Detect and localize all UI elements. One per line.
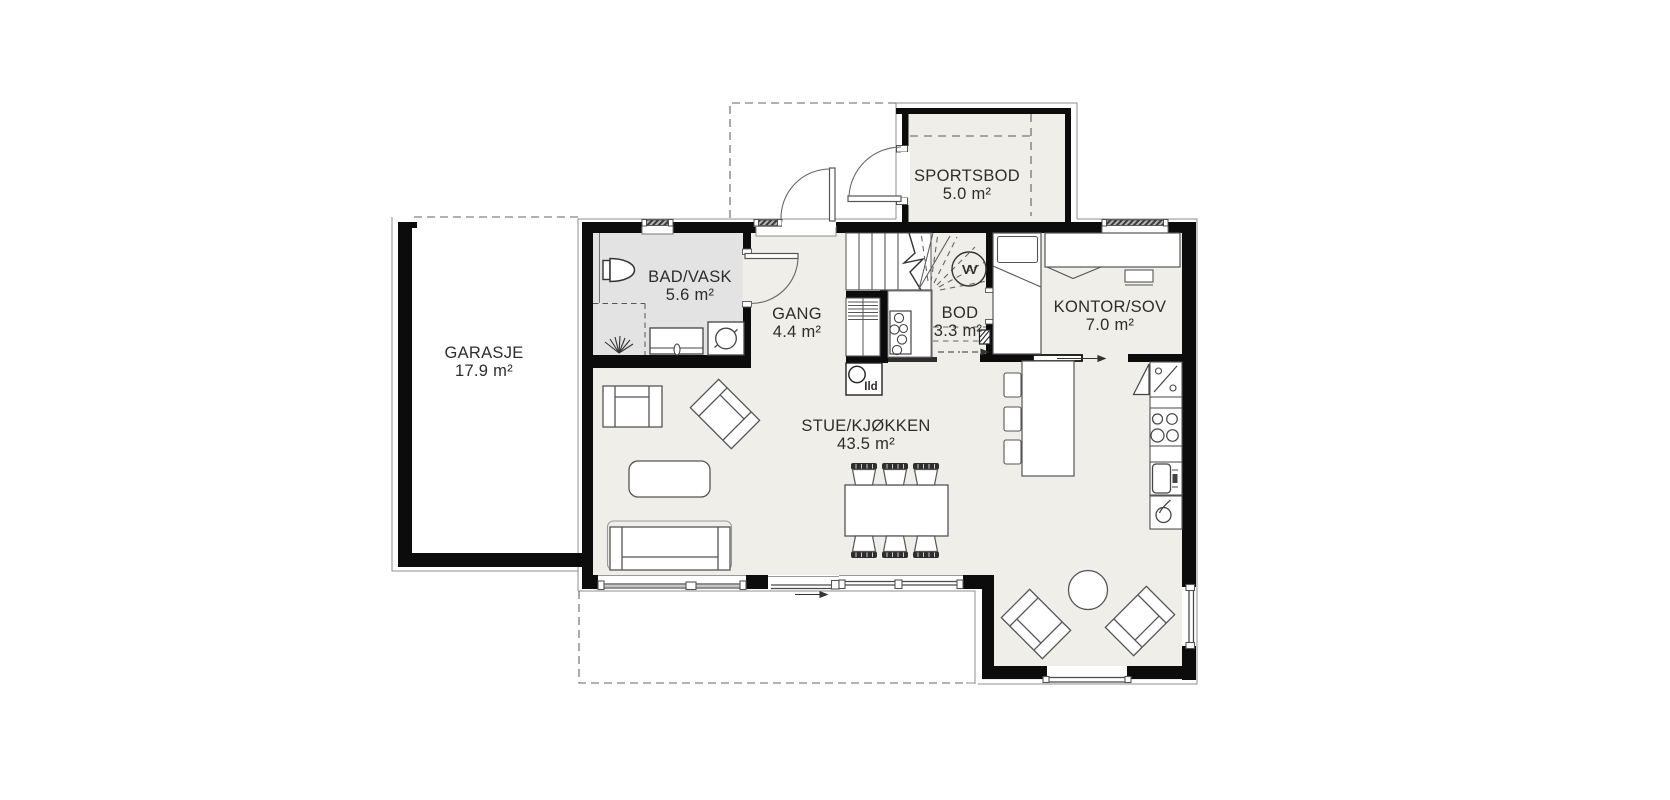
- svg-text:3.3 m²: 3.3 m²: [934, 322, 983, 340]
- svg-text:43.5 m²: 43.5 m²: [837, 435, 895, 453]
- svg-text:17.9 m²: 17.9 m²: [455, 362, 513, 380]
- svg-text:GARASJE: GARASJE: [444, 344, 523, 362]
- svg-text:5.6 m²: 5.6 m²: [666, 286, 715, 304]
- svg-text:4.4 m²: 4.4 m²: [773, 323, 822, 341]
- svg-text:VV: VV: [962, 262, 978, 277]
- svg-text:BOD: BOD: [942, 304, 979, 322]
- svg-text:7.0 m²: 7.0 m²: [1086, 316, 1135, 334]
- svg-text:GANG: GANG: [772, 305, 822, 323]
- svg-text:Ild: Ild: [864, 381, 877, 393]
- svg-text:5.0 m²: 5.0 m²: [943, 185, 992, 203]
- svg-text:BAD/VASK: BAD/VASK: [648, 268, 732, 286]
- svg-text:STUE/KJØKKEN: STUE/KJØKKEN: [801, 417, 930, 435]
- svg-text:KONTOR/SOV: KONTOR/SOV: [1054, 298, 1167, 316]
- svg-text:SPORTSBOD: SPORTSBOD: [914, 167, 1020, 185]
